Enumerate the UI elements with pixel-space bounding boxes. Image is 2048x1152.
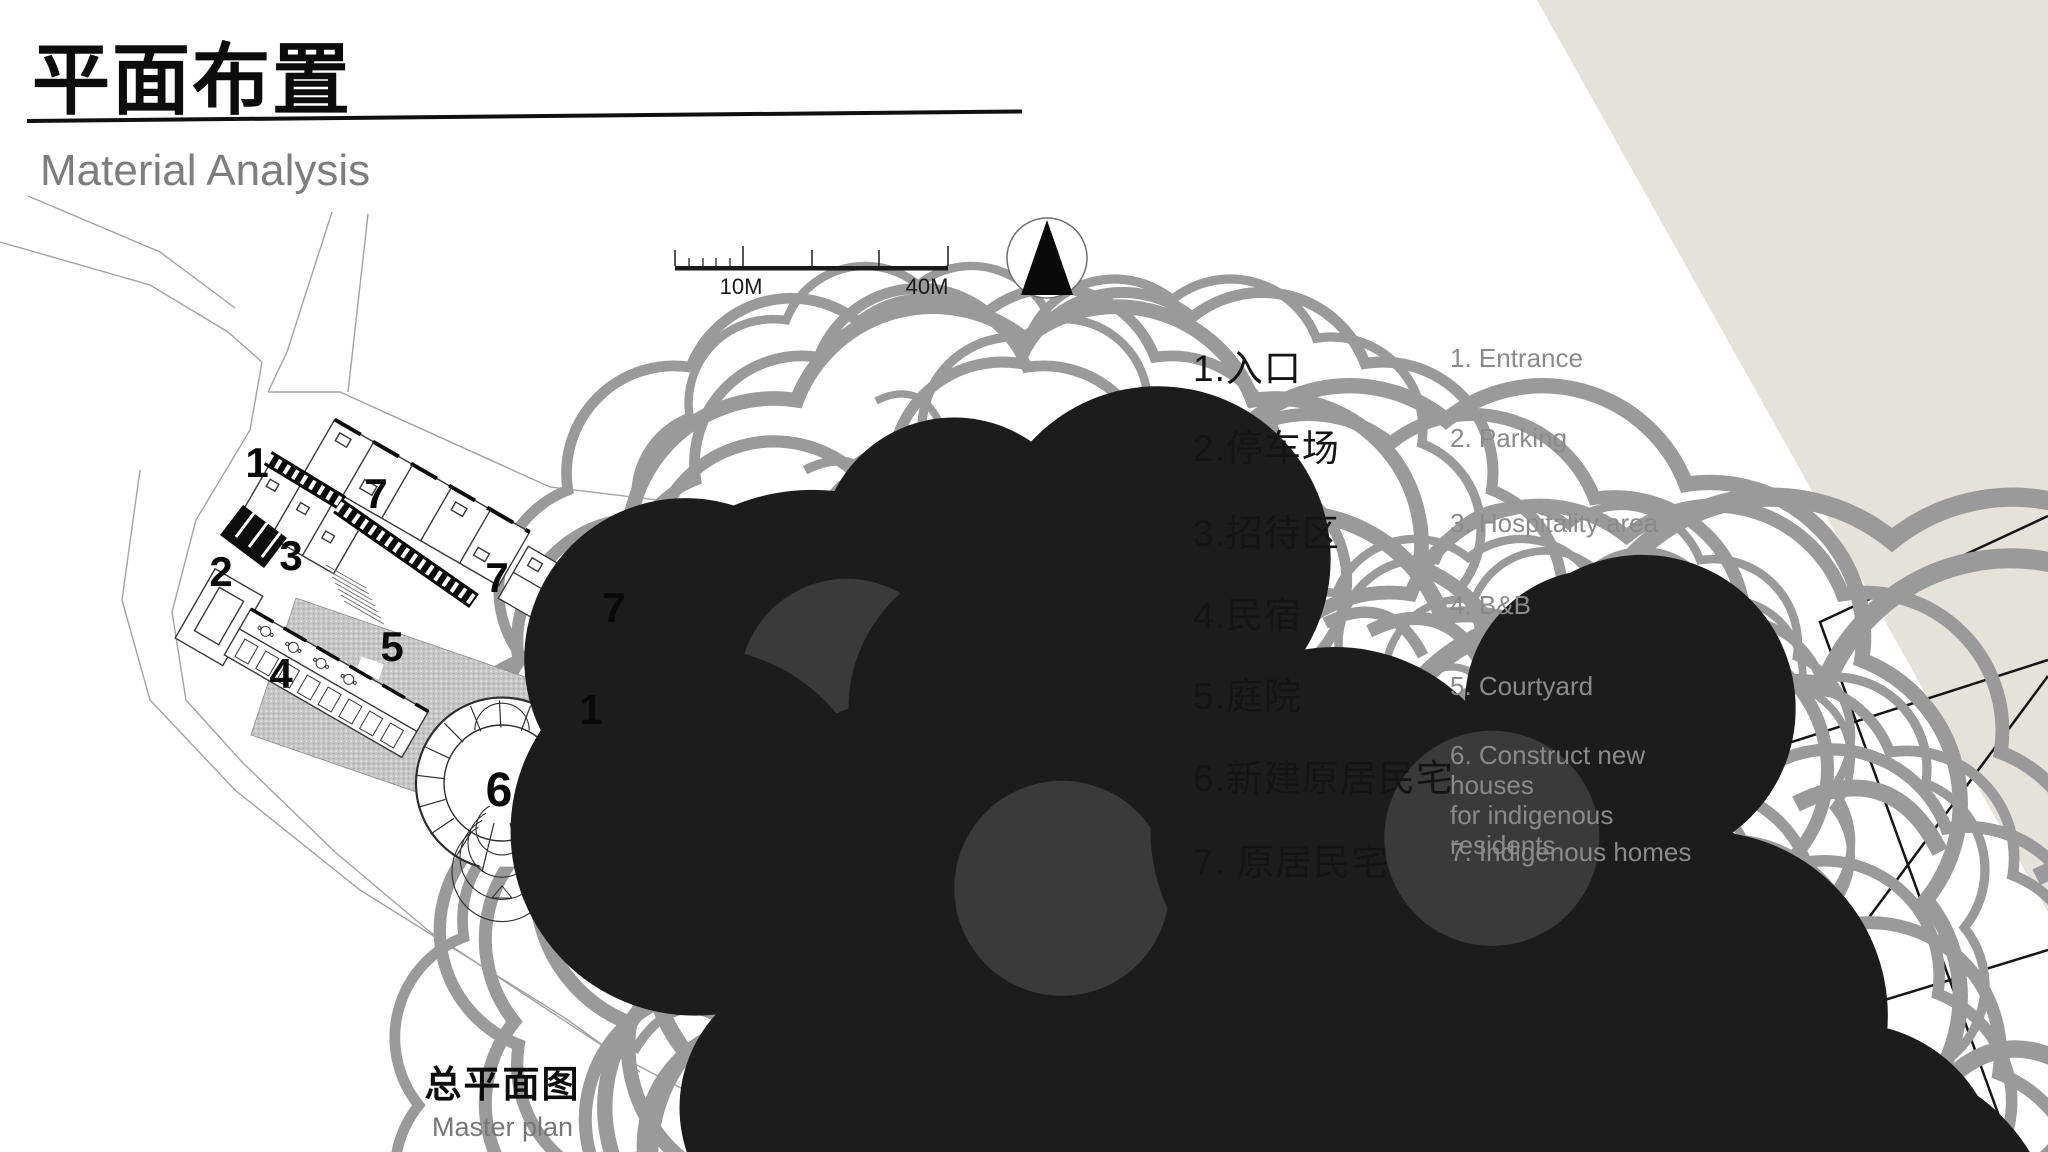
north-arrow-icon — [1007, 218, 1087, 298]
plan-caption-cn: 总平面图 — [330, 1054, 675, 1108]
legend-item-indigenous-homes: 7. 原居民宅 7. Indigenous homes — [1193, 832, 1389, 886]
plan-label: 6 — [486, 764, 513, 817]
plan-caption-en: Master plan — [330, 1112, 675, 1143]
legend-cn-label: 3.招待区 — [1193, 513, 1340, 554]
legend-cn-label: 5.庭院 — [1193, 676, 1302, 717]
legend-item-new-houses: 6.新建原居民宅 6. Construct new houses for ind… — [1193, 748, 1454, 802]
plan-label: 1 — [245, 439, 268, 486]
scale-bar-end-label: 40M — [906, 274, 949, 299]
legend-en-label: 2. Parking — [1450, 423, 1720, 453]
plan-label: 2 — [209, 548, 232, 595]
legend-en-label: 5. Courtyard — [1450, 671, 1720, 701]
plan-label: 3 — [279, 532, 302, 579]
plan-label: 7 — [485, 554, 508, 601]
legend-en-label: 1. Entrance — [1450, 343, 1720, 373]
legend-cn-label: 6.新建原居民宅 — [1193, 758, 1454, 799]
plan-label: 7 — [364, 470, 387, 517]
slide: 1 7 2 3 7 7 5 4 1 6 10M 40M — [0, 0, 2048, 1152]
legend-item-bnb: 4.民宿 4. B&B — [1193, 585, 1302, 639]
legend-item-entrance: 1.入口 1. Entrance — [1193, 338, 1302, 392]
legend-en-label: 4. B&B — [1450, 590, 1720, 620]
legend-en-label: 7. Indigenous homes — [1450, 837, 1720, 867]
page-title: 平面布置 — [32, 18, 352, 130]
legend-item-parking: 2.停车场 2. Parking — [1193, 418, 1340, 472]
legend-item-courtyard: 5.庭院 5. Courtyard — [1193, 666, 1302, 720]
legend-cn-label: 4.民宿 — [1193, 595, 1302, 636]
legend-cn-label: 7. 原居民宅 — [1193, 842, 1389, 883]
legend-cn-label: 1.入口 — [1193, 348, 1302, 389]
legend-item-hospitality: 3.招待区 3. Hospitality area — [1193, 503, 1340, 557]
plan-label: 1 — [579, 686, 602, 733]
legend-cn-label: 2.停车场 — [1193, 428, 1340, 469]
page-subtitle: Material Analysis — [40, 146, 370, 196]
legend-en-label: 3. Hospitality area — [1450, 508, 1720, 538]
plan-label: 5 — [380, 623, 403, 670]
plan-label: 4 — [269, 650, 293, 697]
plan-label: 7 — [602, 584, 625, 631]
plan-caption: 总平面图 Master plan — [330, 1054, 675, 1143]
scale-bar-mid-label: 10M — [720, 274, 763, 299]
